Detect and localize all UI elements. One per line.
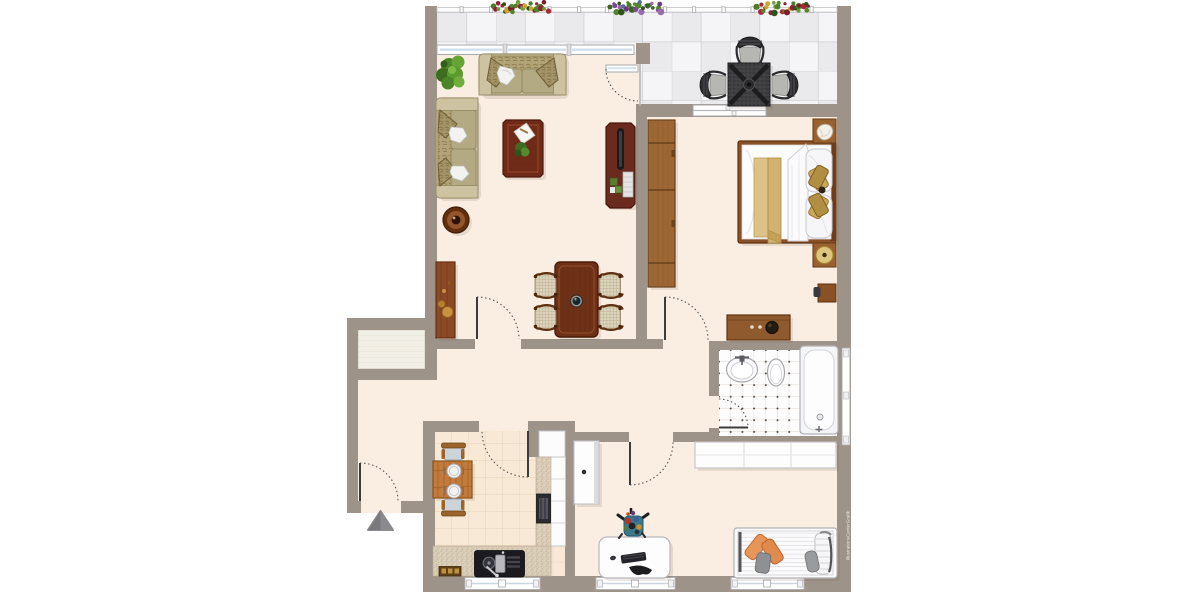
svg-text:illustrationsCenterGrafik: illustrationsCenterGrafik	[846, 510, 851, 560]
